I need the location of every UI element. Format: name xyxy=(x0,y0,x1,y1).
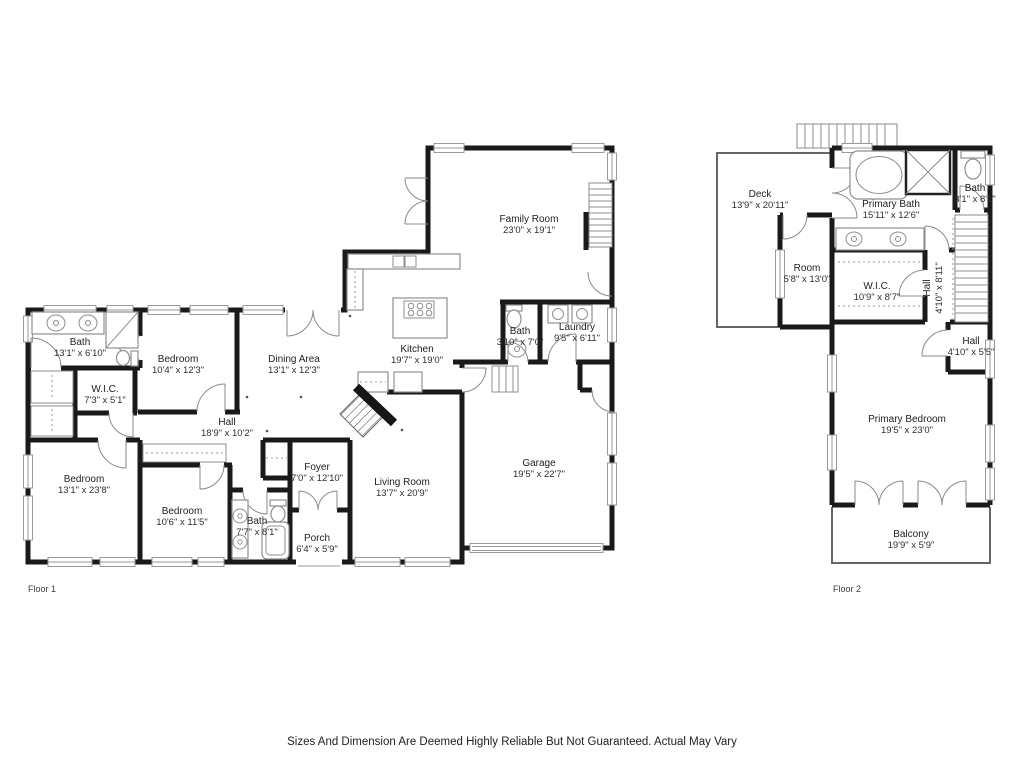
bathtub-icon xyxy=(850,151,908,199)
room-dims: 23'0" x 19'1" xyxy=(503,225,555,236)
room-dims: 10'9" x 8'7" xyxy=(854,292,901,303)
room-dims: 4'10" x 5'5" xyxy=(948,347,995,358)
room-dims: 19'7" x 19'0" xyxy=(391,355,443,366)
room-label-laundry: Laundry 9'5" x 6'11" xyxy=(554,322,600,344)
toilet-icon xyxy=(117,351,139,367)
room-name: Bedroom xyxy=(158,354,199,365)
room-dims: 19'5" x 22'7" xyxy=(513,469,565,480)
kitchen-island xyxy=(393,298,447,338)
disclaimer-text: Sizes And Dimension Are Deemed Highly Re… xyxy=(287,736,737,748)
room-dims: 13'9" x 20'11" xyxy=(732,200,789,211)
room-label-living-room: Living Room 13'7" x 20'9" xyxy=(374,477,430,499)
room-name: Hall xyxy=(962,336,979,347)
room-label-family-room: Family Room 23'0" x 19'1" xyxy=(500,214,559,236)
room-dims: 13'7" x 20'9" xyxy=(376,488,428,499)
room-name: Laundry xyxy=(559,322,595,333)
room-label-balcony: Balcony 19'9" x 5'9" xyxy=(888,529,935,551)
washer-icon xyxy=(548,305,568,323)
room-name: Garage xyxy=(522,458,556,469)
room-label-primary-bath: Primary Bath 15'11" x 12'6" xyxy=(862,199,920,221)
floor1-label: Floor 1 xyxy=(28,584,56,594)
room-name: Room xyxy=(794,263,821,274)
room-dims: 13'1" x 6'10" xyxy=(54,348,106,359)
room-label-dining: Dining Area 13'1" x 12'3" xyxy=(268,354,320,376)
room-name: Bath xyxy=(510,326,531,337)
room-dims: 7'7" x 8'1" xyxy=(236,527,278,538)
room-name: W.I.C. xyxy=(863,281,890,292)
room-name: Primary Bath xyxy=(862,199,920,210)
room-name: W.I.C. xyxy=(91,384,118,395)
room-label-bedroom3: Bedroom 10'6" x 11'5" xyxy=(156,506,207,528)
room-dims: 19'9" x 5'9" xyxy=(888,540,935,551)
room-dims: 7'0" x 12'10" xyxy=(291,473,343,484)
room-name: Deck xyxy=(749,189,773,200)
room-name: Hall xyxy=(922,279,933,296)
room-name: Primary Bedroom xyxy=(868,414,946,425)
room-dims: 9'5" x 6'11" xyxy=(554,333,600,344)
room-name: Foyer xyxy=(304,462,330,473)
floor1-stairs xyxy=(589,183,612,247)
room-name: Hall xyxy=(218,417,235,428)
floorplan-svg: Bath 13'1" x 6'10" Bedroom 10'4" x 12'3"… xyxy=(0,0,1024,768)
room-dims: 13'1" x 12'3" xyxy=(268,365,320,376)
floorplan-page: Bath 13'1" x 6'10" Bedroom 10'4" x 12'3"… xyxy=(0,0,1024,768)
room-dims: 4'10" x 8'11" xyxy=(934,262,945,313)
room-dims: 15'11" x 12'6" xyxy=(863,210,920,221)
room-name: Bath xyxy=(247,516,268,527)
vanity xyxy=(32,312,104,334)
room-name: Bedroom xyxy=(64,474,105,485)
room-name: Bedroom xyxy=(162,506,203,517)
room-name: Porch xyxy=(304,533,330,544)
room-dims: 3'10" x 7'0" xyxy=(497,337,544,348)
room-dims: 19'5" x 23'0" xyxy=(881,425,933,436)
floor2-label: Floor 2 xyxy=(833,584,861,594)
room-name: Bath xyxy=(70,337,91,348)
room-name: Bath xyxy=(965,183,986,194)
dryer-icon xyxy=(572,305,592,323)
room-dims: 10'4" x 12'3" xyxy=(152,365,204,376)
room-name: Dining Area xyxy=(268,354,320,365)
room-dims: 18'9" x 10'2" xyxy=(201,428,253,439)
room-dims: 5'8" x 13'0" xyxy=(784,274,831,285)
garage-door xyxy=(470,544,603,553)
room-dims: 3'1" x 8'1" xyxy=(954,194,996,205)
shower-icon xyxy=(906,150,950,194)
toilet-icon xyxy=(270,500,286,522)
room-name: Balcony xyxy=(893,529,929,540)
room-dims: 7'3" x 5'1" xyxy=(84,395,126,406)
room-name: Living Room xyxy=(374,477,430,488)
room-name: Kitchen xyxy=(400,344,433,355)
room-dims: 10'6" x 11'5" xyxy=(156,517,207,528)
floor2-stairs xyxy=(953,215,988,322)
toilet-icon xyxy=(506,305,522,328)
room-dims: 13'1" x 23'8" xyxy=(58,485,110,496)
room-dims: 6'4" x 5'9" xyxy=(296,544,338,555)
vanity xyxy=(836,228,924,250)
room-label-bedroom1: Bedroom 10'4" x 12'3" xyxy=(152,354,204,376)
room-label-bedroom2: Bedroom 13'1" x 23'8" xyxy=(58,474,110,496)
room-name: Family Room xyxy=(500,214,559,225)
